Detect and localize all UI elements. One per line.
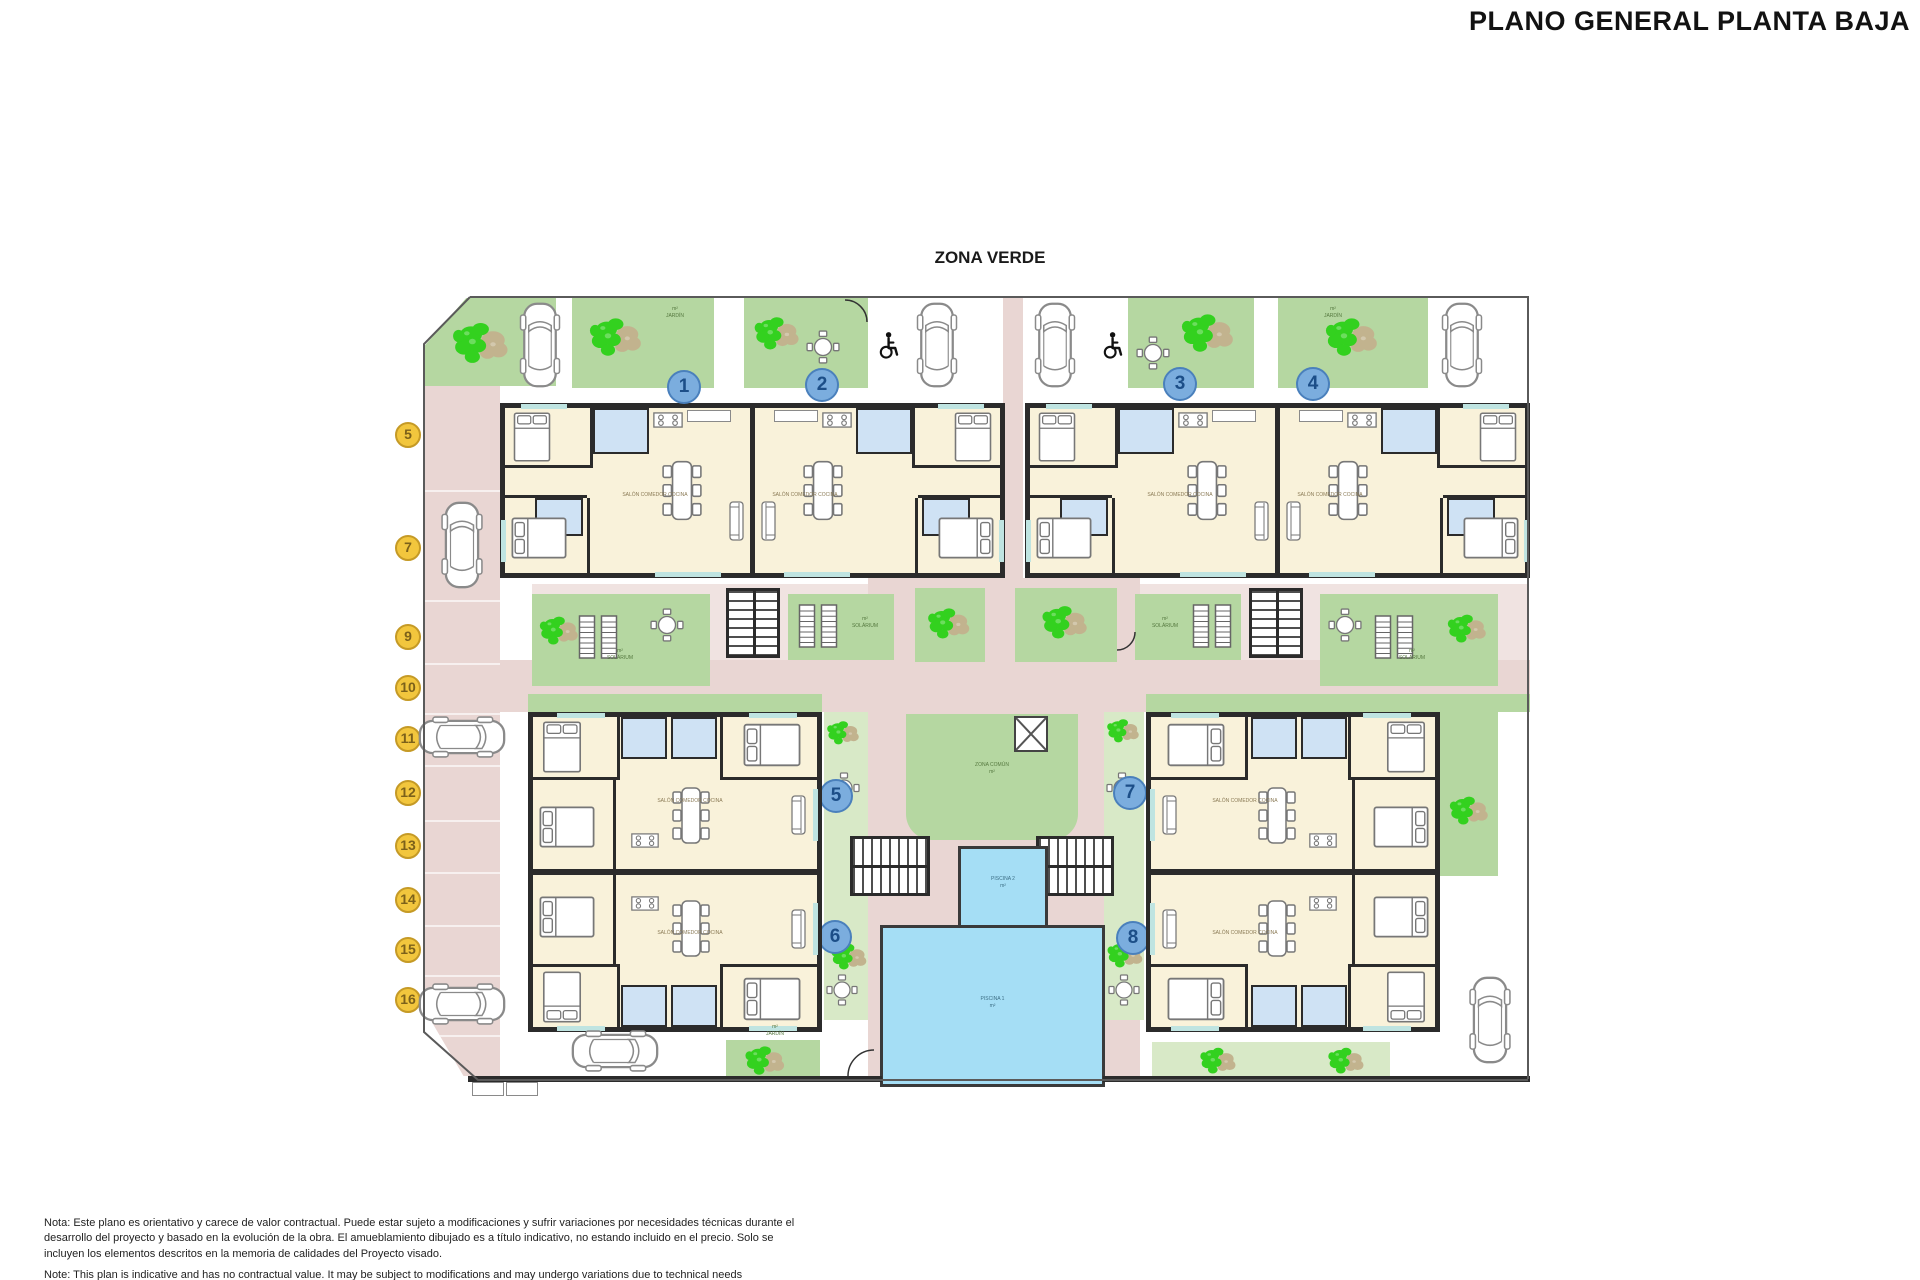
- floor-plan-page: PLANO GENERAL PLANTA BAJA ZONA VERDE 5 7…: [0, 0, 1920, 1280]
- note-english: Note: This plan is indicative and has no…: [44, 1268, 816, 1280]
- site-outline: [0, 0, 1920, 1280]
- note-spanish: Nota: Este plano es orientativo y carece…: [44, 1216, 816, 1262]
